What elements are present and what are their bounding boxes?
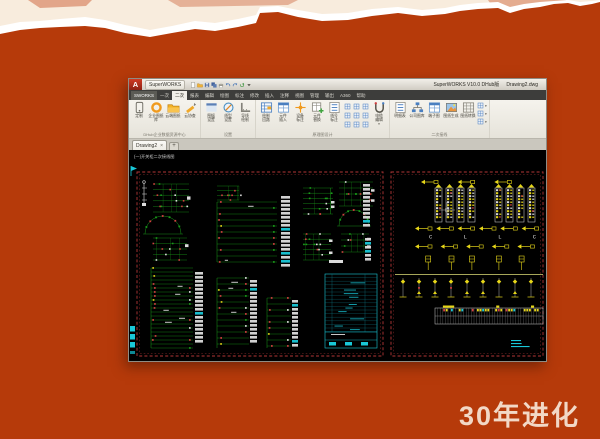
qat-undo-arrow-button[interactable] (225, 82, 231, 88)
ribbon-button-label: 定制 (135, 114, 143, 118)
mini-icon (353, 103, 360, 110)
svg-text:(一)开关柜二次接线图: (一)开关柜二次接线图 (134, 153, 174, 160)
ribbon-button-2-0[interactable]: 绘制 回路 (258, 101, 274, 123)
ribbon-tab-7[interactable]: 修改 (247, 91, 262, 100)
ribbon-tab-0[interactable]: SWORKS (131, 91, 157, 100)
ribbon-group-0: 定制企业图纸库云端图纸云协查DHub企业数据资源中心 (129, 100, 201, 138)
ribbon-button-2-3[interactable]: 元件 替换 (309, 101, 325, 123)
refresh-icon (239, 82, 245, 88)
app-menu-button[interactable]: A (129, 79, 142, 90)
ribbon-stacked-buttons: ▾▾▾ (477, 102, 487, 125)
file-tab-label: Drawing2 (136, 143, 157, 149)
ribbon-button-1-1[interactable]: 线型 设置 (220, 101, 236, 123)
ribbon-button-2-1[interactable]: 元件 插入 (275, 101, 291, 123)
ribbon-group-label: DHub企业数据资源中心 (131, 131, 198, 138)
ribbon-tab-10[interactable]: 视图 (292, 91, 307, 100)
ribbon-button-label: 云端图纸 (165, 114, 180, 118)
org-icon (411, 101, 424, 114)
dropdown-arrow-icon: ▾ (485, 120, 487, 124)
ribbon-button-label: 线型 设置 (224, 114, 232, 123)
file-tab-bar: Drawing2×+ (129, 139, 546, 150)
ribbon-button-label: 元件 插入 (279, 114, 287, 123)
document-name: Drawing2.dwg (506, 82, 538, 88)
ribbon-tab-12[interactable]: 输出 (322, 91, 337, 100)
dropdown-arrow-icon: ▾ (378, 123, 380, 127)
ribbon-button-3-3[interactable]: 图纸生成 (443, 101, 459, 118)
pencil-icon (184, 101, 197, 114)
ribbon-stack-button-3-0[interactable]: ▾ (477, 102, 487, 109)
ribbon-button-0-1[interactable]: 企业图纸库 (148, 101, 164, 123)
qat-new-doc-button[interactable] (190, 82, 196, 88)
undo-arrow-icon (225, 82, 231, 88)
table-blue-icon (277, 101, 290, 114)
dropdown-arrow-icon: ▾ (485, 112, 487, 116)
svg-text:C L L C C: C L L C C (429, 234, 546, 241)
mini-icon (362, 112, 369, 119)
ribbon-small-button-2-7[interactable] (352, 120, 361, 129)
dropdown-arrow-icon: ▾ (485, 104, 487, 108)
ribbon-group-3: 明细表公司图库端子图图纸生成图纸转换▾▾▾二次接线 (390, 100, 490, 138)
ribbon-group-1: 图幅 设置线型 设置导线 绘制设置 (201, 100, 256, 138)
ribbon-button-3-0[interactable]: 明细表 (392, 101, 408, 118)
table-gray-icon (462, 101, 475, 114)
window-title: SuperWORKS V10.0 DHub版 Drawing2.dwg (433, 79, 538, 90)
ribbon-button-2-4[interactable]: 线号 标注 (326, 101, 342, 123)
ribbon-tab-6[interactable]: 标注 (232, 91, 247, 100)
ruler-icon (239, 101, 252, 114)
qat-refresh-button[interactable] (239, 82, 245, 88)
ribbon-small-button-2-1[interactable] (352, 102, 361, 111)
mini-icon (477, 118, 484, 125)
cad-window: A SuperWORKS SuperWORKS V10.0 DHub版 Draw… (128, 78, 547, 362)
cable-icon (373, 101, 386, 114)
ribbon-button-0-0[interactable]: 定制 (131, 101, 147, 118)
ribbon-tab-1[interactable]: 一次 (157, 91, 172, 100)
folder-icon (167, 101, 180, 114)
compass-icon (222, 101, 235, 114)
close-icon[interactable]: × (160, 143, 163, 149)
ribbon-tab-2[interactable]: 二次 (172, 91, 187, 100)
save-icon (204, 82, 210, 88)
ribbon-button-label: 端子图 (428, 114, 439, 118)
mini-icon (344, 121, 351, 128)
ribbon-small-button-2-5[interactable] (361, 111, 370, 120)
app-version-title: SuperWORKS V10.0 DHub版 (433, 81, 499, 88)
mini-icon (477, 110, 484, 117)
ribbon-tab-9[interactable]: 注释 (277, 91, 292, 100)
ribbon-stack-button-3-1[interactable]: ▾ (477, 110, 487, 117)
new-tab-button[interactable]: + (169, 142, 179, 150)
ribbon-button-label: 设备 标注 (296, 114, 304, 123)
list-icon (394, 101, 407, 114)
ribbon-button-label: 导线 绘制 (241, 114, 249, 123)
ribbon-group-label: 原理图设计 (258, 131, 387, 138)
qat-save-button[interactable] (204, 82, 210, 88)
photo-icon (445, 101, 458, 114)
qat-redo-arrow-button[interactable] (232, 82, 238, 88)
dropdown-icon (246, 82, 252, 88)
ribbon-button-label: 公司图库 (409, 114, 424, 118)
ribbon-small-button-grid (343, 102, 370, 129)
ribbon-toolbar: 定制企业图纸库云端图纸云协查DHub企业数据资源中心图幅 设置线型 设置导线 绘… (129, 100, 546, 139)
drawing-canvas-svg: (一)开关柜二次接线图C L L C C (129, 150, 546, 361)
ribbon-group-label: 设置 (203, 131, 253, 138)
qat-dropdown-button[interactable] (246, 82, 252, 88)
ribbon-tab-3[interactable]: 报表 (187, 91, 202, 100)
ribbon-button-label: 图纸转换 (460, 114, 475, 118)
ribbon-tab-4[interactable]: 编辑 (202, 91, 217, 100)
ribbon-small-button-2-2[interactable] (361, 102, 370, 111)
ribbon-button-3-4[interactable]: 图纸转换 (460, 101, 476, 118)
qat-open-folder-button[interactable] (197, 82, 203, 88)
ribbon-button-0-2[interactable]: 云端图纸 (165, 101, 181, 118)
ribbon-button-3-1[interactable]: 公司图库 (409, 101, 425, 118)
save-all-icon (211, 82, 217, 88)
mini-icon (477, 102, 484, 109)
ribbon-tab-11[interactable]: 管理 (307, 91, 322, 100)
mini-icon (344, 103, 351, 110)
slide: { "slide": { "caption": "30年进化", "colors… (0, 0, 600, 439)
ring-icon (150, 101, 163, 114)
ribbon-button-label: 线号 标注 (330, 114, 338, 123)
ribbon-small-button-2-8[interactable] (361, 120, 370, 129)
ribbon-button-label: 绘制 回路 (262, 114, 270, 123)
ribbon-small-button-2-6[interactable] (343, 120, 352, 129)
star-icon (294, 101, 307, 114)
redo-arrow-icon (232, 82, 238, 88)
qat-plot-button[interactable] (218, 82, 224, 88)
window-titlebar: A SuperWORKS SuperWORKS V10.0 DHub版 Draw… (129, 79, 546, 90)
ribbon-button-1-0[interactable]: 图幅 设置 (203, 101, 219, 123)
ribbon-button-label: 图幅 设置 (207, 114, 215, 123)
slide-caption: 30年进化 (459, 394, 580, 433)
open-folder-icon (197, 82, 203, 88)
ribbon-button-label: 图纸生成 (443, 114, 458, 118)
qat-save-all-button[interactable] (211, 82, 217, 88)
drawing-canvas[interactable]: (一)开关柜二次接线图C L L C C (129, 150, 546, 361)
phone-icon (133, 101, 146, 114)
ribbon-button-label: 企业图纸库 (148, 114, 164, 123)
ribbon-button-0-3[interactable]: 云协查 (182, 101, 198, 118)
grid-edit-icon (260, 101, 273, 114)
ribbon-button-label: 元件 替换 (313, 114, 321, 123)
ribbon-button-2-t0[interactable]: 电缆 编辑▾ (371, 101, 387, 126)
mini-icon (353, 112, 360, 119)
mini-icon (344, 112, 351, 119)
mini-icon (362, 121, 369, 128)
ribbon-tab-14[interactable]: 帮助 (354, 91, 369, 100)
plot-icon (218, 82, 224, 88)
new-doc-icon (190, 82, 196, 88)
ribbon-button-label: 明细表 (394, 114, 405, 118)
table-blue-icon (428, 101, 441, 114)
mini-icon (353, 121, 360, 128)
ribbon-small-button-2-3[interactable] (343, 111, 352, 120)
file-tab-0[interactable]: Drawing2× (132, 140, 167, 150)
table-plus-icon (311, 101, 324, 114)
ribbon-group-label: 二次接线 (392, 131, 487, 138)
ribbon-tab-bar: SWORKS一次二次报表编辑绘图标注修改插入注释视图管理输出A360帮助 (129, 90, 546, 100)
ribbon-small-button-2-4[interactable] (352, 111, 361, 120)
ribbon-button-2-2[interactable]: 设备 标注 (292, 101, 308, 123)
ribbon-button-label: 云协查 (184, 114, 195, 118)
ribbon-button-1-2[interactable]: 导线 绘制 (237, 101, 253, 123)
ribbon-button-3-2[interactable]: 端子图 (426, 101, 442, 118)
quick-access-toolbar (190, 82, 252, 88)
list-icon (328, 101, 341, 114)
ribbon-small-button-2-0[interactable] (343, 102, 352, 111)
ribbon-tab-8[interactable]: 插入 (262, 91, 277, 100)
ribbon-stack-button-3-2[interactable]: ▾ (477, 118, 487, 125)
ribbon-group-2: 绘制 回路元件 插入设备 标注元件 替换线号 标注电缆 编辑▾原理图设计 (256, 100, 390, 138)
mini-icon (362, 103, 369, 110)
app-name-label: SuperWORKS (145, 80, 185, 90)
frame-icon (205, 101, 218, 114)
ribbon-tab-5[interactable]: 绘图 (217, 91, 232, 100)
ribbon-tab-13[interactable]: A360 (337, 91, 354, 100)
